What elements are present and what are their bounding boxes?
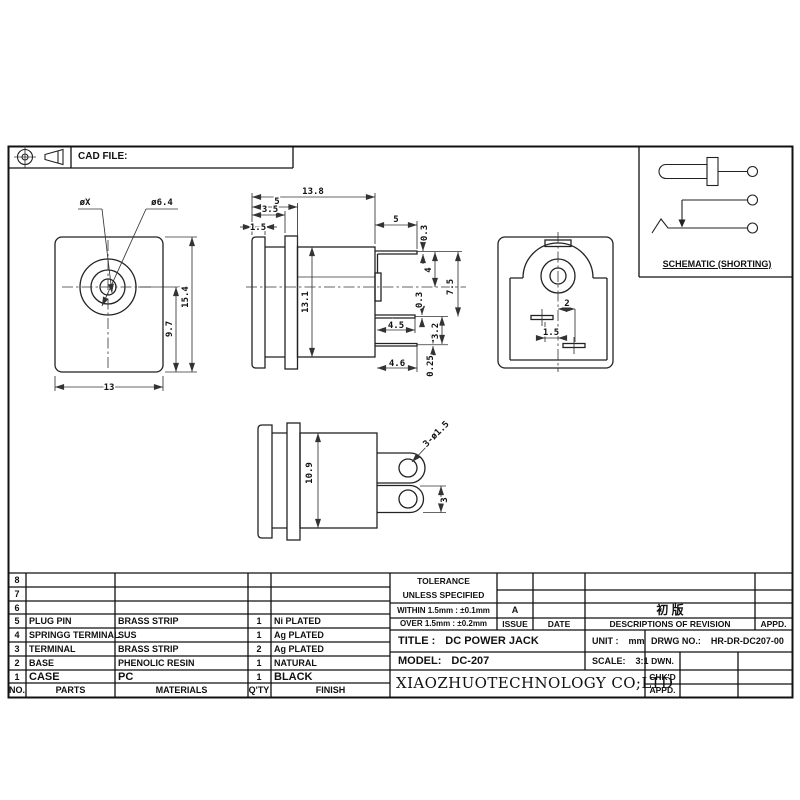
front-view: øX ø6.4 15.4 9.7 13 xyxy=(55,198,197,393)
dim-side-flange-thickness: 1.5 xyxy=(250,223,266,233)
parts-row-no: 4 xyxy=(9,628,25,642)
parts-row-finish: NATURAL xyxy=(274,656,386,670)
parts-row-qty: 1 xyxy=(248,670,270,684)
back-view: 2 1.5 xyxy=(498,232,613,372)
unit-label: UNIT : xyxy=(592,637,619,646)
date-label: DATE xyxy=(533,618,585,630)
dim-side-top-terminal-thickness: 0.3 xyxy=(420,225,430,241)
dim-side-terminal-span: 7.5 xyxy=(446,279,456,295)
scale-cell: SCALE: 3:1 xyxy=(592,652,649,670)
parts-row-qty: 1 xyxy=(248,614,270,628)
projection-symbol-icon xyxy=(14,146,63,168)
parts-row-no: 1 xyxy=(9,670,25,684)
parts-header-qty: Q'TY xyxy=(248,683,270,697)
revision-descriptions-label: DESCRIPTIONS OF REVISION xyxy=(585,618,755,630)
dim-side-bottom-terminal-thickness: 0.25 xyxy=(426,355,436,377)
parts-row-qty: 2 xyxy=(248,642,270,656)
parts-header-parts: PARTS xyxy=(26,683,115,697)
parts-row-qty: 1 xyxy=(248,656,270,670)
parts-row-part: SPRINGG TERMINAL xyxy=(29,628,113,642)
dim-side-bottom-terminal-length: 4.6 xyxy=(389,359,405,369)
parts-row-material: BRASS STRIP xyxy=(118,614,246,628)
parts-row-qty: 1 xyxy=(248,628,270,642)
dim-front-center-bottom: 9.7 xyxy=(165,321,175,337)
dim-front-height: 15.4 xyxy=(181,286,191,308)
schematic-symbol xyxy=(652,158,758,234)
parts-row-finish: Ag PLATED xyxy=(274,628,386,642)
dim-back-right-slot-offset: 2 xyxy=(564,299,569,309)
drwg-value: HR-DR-DC207-00 xyxy=(711,637,784,646)
tolerance-subtitle: UNLESS SPECIFIED xyxy=(390,589,497,602)
parts-row-material: PC xyxy=(118,670,246,684)
dim-side-mid-terminal-length: 4.5 xyxy=(388,321,404,331)
switch-arrow-icon xyxy=(679,220,686,228)
parts-header-finish: FINISH xyxy=(271,683,390,697)
scale-label: SCALE: xyxy=(592,657,626,666)
dim-side-step-depth: 3.5 xyxy=(262,205,278,215)
parts-row-no: 3 xyxy=(9,642,25,656)
dim-side-terminal-gap: 3.2 xyxy=(431,323,441,339)
unit-value: mm xyxy=(629,637,645,646)
parts-row-material: PHENOLIC RESIN xyxy=(118,656,246,670)
title-label: TITLE : xyxy=(398,636,435,647)
engineering-drawing-sheet: øX ø6.4 15.4 9.7 13 xyxy=(0,0,800,800)
parts-row-part: CASE xyxy=(29,670,113,684)
dim-front-width: 13 xyxy=(104,383,115,393)
parts-row-finish: Ag PLATED xyxy=(274,642,386,656)
drwg-label: DRWG NO.: xyxy=(651,637,701,646)
parts-row-part: TERMINAL xyxy=(29,642,113,656)
dim-bottom-hole-spec: 3-ø1.5 xyxy=(422,420,452,450)
dim-side-total-depth: 13.8 xyxy=(302,187,324,197)
revision-appd-label: APPD. xyxy=(755,618,792,630)
dim-bottom-terminal-width: 3 xyxy=(440,497,450,502)
parts-header-materials: MATERIALS xyxy=(115,683,248,697)
parts-header-no: NO. xyxy=(9,683,25,697)
revision-entry: 初 版 xyxy=(585,602,755,618)
parts-row-part: BASE xyxy=(29,656,113,670)
parts-row-material: SUS xyxy=(118,628,246,642)
dim-back-left-slot-offset: 1.5 xyxy=(543,328,559,338)
schematic-caption: SCHEMATIC (SHORTING) xyxy=(641,256,793,272)
model-value: DC-207 xyxy=(451,656,489,667)
dwn-label: DWN. xyxy=(645,652,680,670)
parts-row-no: 2 xyxy=(9,656,25,670)
dim-side-top-terminal-length: 5 xyxy=(393,215,398,225)
company-name: XIAOZHUOTECHNOLOGY CO;LTD xyxy=(396,670,673,697)
issue-value: A xyxy=(497,603,533,618)
cad-file-label: CAD FILE: xyxy=(78,147,127,167)
parts-row-finish: Ni PLATED xyxy=(274,614,386,628)
parts-row-no: 6 xyxy=(9,601,25,615)
parts-row-material: BRASS STRIP xyxy=(118,642,246,656)
title-row: TITLE : DC POWER JACK xyxy=(398,630,539,652)
unit-cell: UNIT : mm xyxy=(592,630,645,652)
issue-label: ISSUE xyxy=(497,618,533,630)
parts-row-no: 5 xyxy=(9,614,25,628)
dim-front-opening-dia: ø6.4 xyxy=(151,198,173,208)
dim-front-pin-dia: øX xyxy=(80,198,91,208)
dim-side-mid-terminal-thickness: 0.3 xyxy=(415,292,425,308)
tolerance-within: WITHIN 1.5mm : ±0.1mm xyxy=(390,603,497,618)
tolerance-title: TOLERANCE xyxy=(390,575,497,588)
parts-row-finish: BLACK xyxy=(274,670,386,684)
bottom-view: 10.9 3-ø1.5 3 xyxy=(258,420,452,540)
parts-row-no: 7 xyxy=(9,587,25,601)
drwg-cell: DRWG NO.: HR-DR-DC207-00 xyxy=(651,630,784,652)
title-value: DC POWER JACK xyxy=(445,636,539,647)
dim-side-body-height: 13.1 xyxy=(301,291,311,313)
model-row: MODEL: DC-207 xyxy=(398,652,489,670)
side-view: 13.8 5 3.5 1.5 5 0.3 4 7.5 0.3 4.5 3.2 0… xyxy=(240,187,466,377)
model-label: MODEL: xyxy=(398,656,441,667)
parts-row-no: 8 xyxy=(9,573,25,587)
parts-row-part: PLUG PIN xyxy=(29,614,113,628)
dim-side-pin-height: 4 xyxy=(424,267,434,273)
dim-bottom-body-width: 10.9 xyxy=(305,462,315,484)
tolerance-over: OVER 1.5mm : ±0.2mm xyxy=(390,618,497,630)
